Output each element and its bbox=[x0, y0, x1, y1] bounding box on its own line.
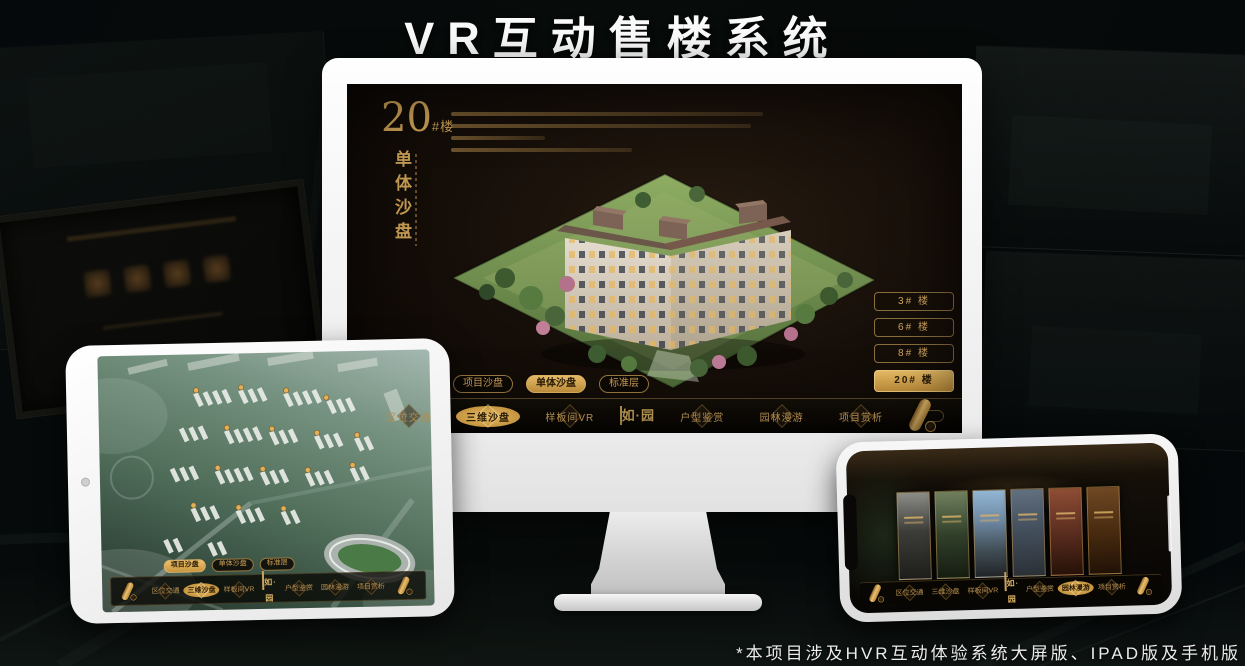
phone-scroll-left-icon[interactable] bbox=[868, 585, 885, 602]
building-3d-model[interactable] bbox=[447, 158, 883, 394]
phone-device: 区位交通 三维沙盘 样板间VR 如·园 户型鉴赏 园林漫游 项目赏析 bbox=[836, 433, 1183, 622]
ipad-scroll-left-icon[interactable] bbox=[121, 583, 140, 600]
scene-panel-autumn[interactable] bbox=[1048, 487, 1083, 576]
section-subtitle-vertical: 单体沙盘 bbox=[389, 150, 414, 246]
monitor-base bbox=[554, 594, 762, 611]
nav-item-project-gallery[interactable]: 项目赏析 bbox=[829, 406, 893, 427]
ipad-scroll-right-icon[interactable] bbox=[396, 577, 415, 594]
nav-item-showflat-vr[interactable]: 样板间VR bbox=[535, 406, 604, 427]
ipad-tab-single-building[interactable]: 单体沙盘 bbox=[212, 558, 254, 572]
scene-panel-garden[interactable] bbox=[934, 490, 969, 579]
subtitle-latin-caption-blur bbox=[415, 154, 417, 246]
phone-notch bbox=[843, 494, 858, 570]
nav-item-garden-roam[interactable]: 园林漫游 bbox=[750, 406, 814, 427]
phone-nav-location-traffic[interactable]: 区位交通 bbox=[891, 585, 927, 600]
phone-nav-project-gallery[interactable]: 项目赏析 bbox=[1094, 580, 1130, 595]
footnote-caption: *本项目涉及HVR互动体验系统大屏版、IPAD版及手机版 bbox=[736, 639, 1241, 664]
ipad-camera-icon bbox=[81, 478, 90, 487]
ipad-nav-floorplans[interactable]: 户型鉴赏 bbox=[281, 580, 317, 595]
scene-panel-gallery bbox=[896, 486, 1121, 580]
background-collage-right-bottom bbox=[980, 250, 1245, 451]
scene-panel-building-dusk[interactable] bbox=[1010, 488, 1045, 577]
phone-brand-logo-text: 如·园 bbox=[1006, 579, 1019, 604]
scroll-menu-icon[interactable] bbox=[908, 401, 944, 431]
ipad-tab-standard-floor[interactable]: 标准层 bbox=[260, 558, 295, 571]
ipad-device: 项目沙盘 单体沙盘 标准层 区位交通 三维沙盘 样板间VR 如·园 户型鉴赏 园… bbox=[65, 338, 455, 624]
ipad-brand-logo: 如·园 bbox=[258, 572, 281, 604]
building-selector: 3# 楼 6# 楼 8# 楼 20# 楼 bbox=[874, 292, 954, 399]
phone-home-indicator bbox=[1167, 495, 1172, 551]
brand-logo: 如·园 bbox=[620, 408, 655, 424]
phone-nav-floorplans[interactable]: 户型鉴赏 bbox=[1022, 582, 1058, 597]
building-button-8[interactable]: 8# 楼 bbox=[874, 344, 954, 363]
phone-scroll-right-icon[interactable] bbox=[1136, 578, 1153, 595]
building-number: 20 bbox=[381, 95, 432, 141]
plaque-text-blur-bottom bbox=[103, 312, 223, 331]
phone-nav-garden-roam[interactable]: 园林漫游 bbox=[1058, 581, 1094, 596]
ipad-nav-showflat-vr[interactable]: 样板间VR bbox=[219, 582, 258, 597]
building-button-20[interactable]: 20# 楼 bbox=[874, 370, 954, 392]
tab-single-building[interactable]: 单体沙盘 bbox=[526, 375, 586, 394]
phone-screen: 区位交通 三维沙盘 样板间VR 如·园 户型鉴赏 园林漫游 项目赏析 bbox=[846, 443, 1172, 614]
ipad-tab-project-sandtable[interactable]: 项目沙盘 bbox=[164, 559, 206, 573]
ipad-brand-logo-text: 如·园 bbox=[264, 577, 277, 602]
phone-nav-showflat-vr[interactable]: 样板间VR bbox=[963, 583, 1002, 598]
plaque-glyphs-blur bbox=[7, 245, 308, 307]
brand-logo-text: 如·园 bbox=[622, 408, 655, 423]
scene-panel-building-day[interactable] bbox=[972, 489, 1007, 578]
ipad-nav-location-traffic[interactable]: 区位交通 bbox=[147, 583, 183, 598]
poster-canvas: VR互动售楼系统 20#楼 单体沙盘 bbox=[0, 0, 1245, 666]
phone-brand-logo: 如·园 bbox=[1002, 574, 1022, 607]
phone-nav-3d-sandtable[interactable]: 三维沙盘 bbox=[927, 584, 963, 599]
tab-standard-floor[interactable]: 标准层 bbox=[599, 375, 649, 394]
ipad-nav-garden-roam[interactable]: 园林漫游 bbox=[317, 580, 353, 595]
nav-item-floorplans[interactable]: 户型鉴赏 bbox=[670, 406, 734, 427]
view-tabs: 项目沙盘 单体沙盘 标准层 bbox=[453, 375, 649, 394]
nav-item-3d-sandtable[interactable]: 三维沙盘 bbox=[456, 406, 520, 427]
ipad-nav-project-gallery[interactable]: 项目赏析 bbox=[353, 579, 389, 594]
nav-item-location-traffic[interactable]: 区位交通 bbox=[377, 406, 441, 427]
scene-panel-interior[interactable] bbox=[1086, 486, 1121, 575]
building-description-blur bbox=[451, 104, 763, 160]
ipad-nav-3d-sandtable[interactable]: 三维沙盘 bbox=[183, 582, 219, 597]
scene-panel-sketch[interactable] bbox=[896, 491, 931, 580]
building-number-headline: 20#楼 bbox=[381, 98, 454, 138]
building-button-6[interactable]: 6# 楼 bbox=[874, 318, 954, 337]
plaque-text-blur-top bbox=[67, 216, 236, 242]
background-collage-right-top bbox=[970, 45, 1245, 257]
monitor-stand bbox=[591, 512, 725, 598]
ipad-screen: 项目沙盘 单体沙盘 标准层 区位交通 三维沙盘 样板间VR 如·园 户型鉴赏 园… bbox=[97, 349, 434, 612]
building-button-3[interactable]: 3# 楼 bbox=[874, 292, 954, 311]
tab-project-sandtable[interactable]: 项目沙盘 bbox=[453, 375, 513, 394]
